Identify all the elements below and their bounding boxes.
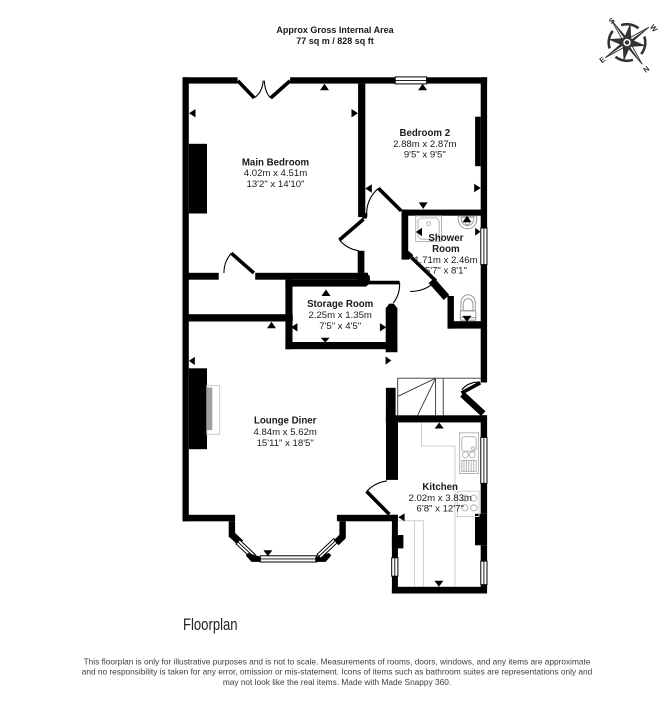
svg-text:2.25m x 1.35m: 2.25m x 1.35m [308,310,371,321]
svg-text:2.88m x 2.87m: 2.88m x 2.87m [393,139,456,150]
svg-text:Shower: Shower [428,233,463,244]
svg-text:may not look like the real ite: may not look like the real items. Made w… [223,677,451,687]
svg-text:6'8" x 12'7": 6'8" x 12'7" [417,504,464,515]
svg-text:Kitchen: Kitchen [422,482,458,493]
svg-text:77 sq m / 828 sq ft: 77 sq m / 828 sq ft [296,36,374,46]
svg-text:and no responsibility is taken: and no responsibility is taken for any e… [82,667,593,677]
svg-text:4.02m x 4.51m: 4.02m x 4.51m [244,168,307,179]
svg-text:Room: Room [432,244,460,255]
svg-text:7'5" x 4'5": 7'5" x 4'5" [319,321,361,332]
svg-text:Lounge Diner: Lounge Diner [254,415,317,426]
svg-text:Approx Gross Internal Area: Approx Gross Internal Area [276,25,394,35]
svg-text:1.71m x 2.46m: 1.71m x 2.46m [414,255,477,266]
svg-text:4.84m x 5.62m: 4.84m x 5.62m [253,427,316,438]
svg-text:9'5" x 9'5": 9'5" x 9'5" [404,150,446,161]
svg-text:Storage Room: Storage Room [307,299,374,310]
svg-text:5'7" x 8'1": 5'7" x 8'1" [425,266,467,277]
svg-text:Bedroom 2: Bedroom 2 [399,128,450,139]
svg-text:This floorplan is only for ill: This floorplan is only for illustrative … [84,657,591,667]
svg-text:15'11" x 18'5": 15'11" x 18'5" [257,438,314,449]
svg-text:2.02m x 3.83m: 2.02m x 3.83m [408,493,471,504]
svg-text:13'2" x 14'10": 13'2" x 14'10" [247,179,305,190]
svg-text:Floorplan: Floorplan [183,615,238,634]
svg-text:Main Bedroom: Main Bedroom [242,157,310,168]
